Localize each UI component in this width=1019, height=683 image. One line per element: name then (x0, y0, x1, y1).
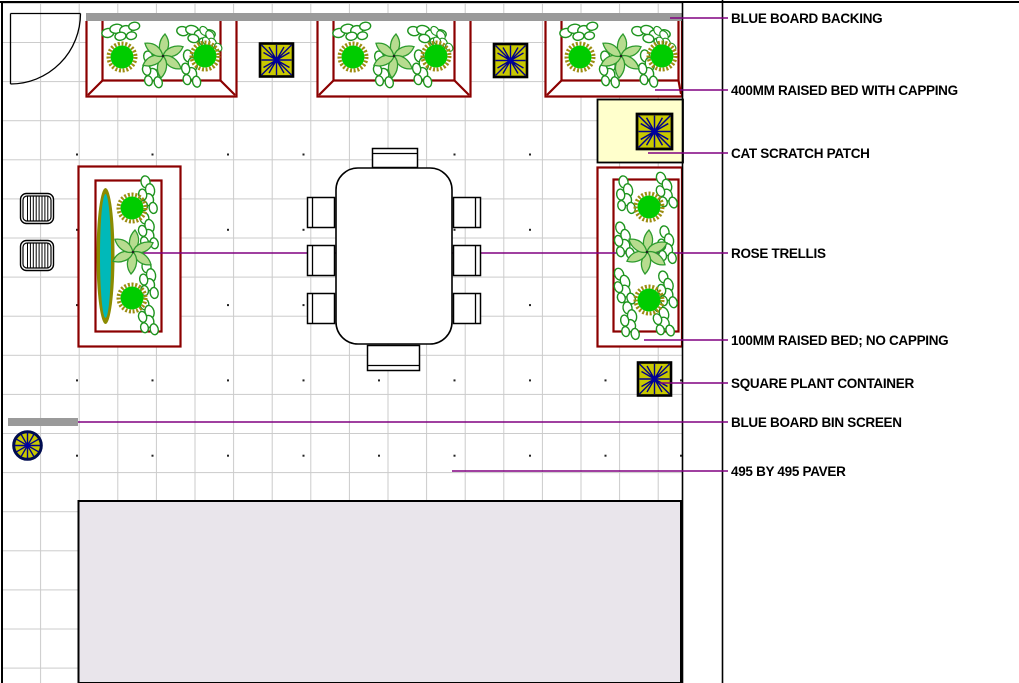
chair (454, 246, 481, 276)
striped-seat (21, 194, 54, 224)
label-square-plant-container: SQUARE PLANT CONTAINER (731, 374, 914, 392)
garden-plan-page: BLUE BOARD BACKING 400MM RAISED BED WITH… (0, 0, 1019, 683)
chair (308, 246, 335, 276)
square-plant-container (260, 44, 293, 77)
blue-board-bin-screen-bar (8, 418, 78, 426)
chair (454, 294, 481, 324)
building-footprint (79, 501, 682, 683)
chair (368, 346, 420, 371)
label-blue-board-backing: BLUE BOARD BACKING (731, 9, 882, 27)
label-400mm-raised-bed: 400MM RAISED BED WITH CAPPING (731, 81, 958, 99)
square-plant-container (638, 363, 671, 396)
chair (308, 198, 335, 228)
blue-board-backing-bar (86, 13, 683, 21)
dining-table (336, 168, 452, 344)
label-rose-trellis: ROSE TRELLIS (731, 244, 826, 262)
chair (373, 149, 418, 168)
square-plant-container (494, 44, 527, 77)
striped-seat (21, 241, 54, 271)
square-plant-container (637, 114, 672, 149)
rose-trellis-panel (100, 194, 111, 318)
chair (454, 198, 481, 228)
label-100mm-raised-bed: 100MM RAISED BED; NO CAPPING (731, 331, 948, 349)
label-495-paver: 495 BY 495 PAVER (731, 462, 846, 480)
chair (308, 294, 335, 324)
label-cat-scratch-patch: CAT SCRATCH PATCH (731, 144, 870, 162)
label-blue-board-bin-screen: BLUE BOARD BIN SCREEN (731, 413, 902, 431)
round-plant-container (14, 432, 42, 460)
